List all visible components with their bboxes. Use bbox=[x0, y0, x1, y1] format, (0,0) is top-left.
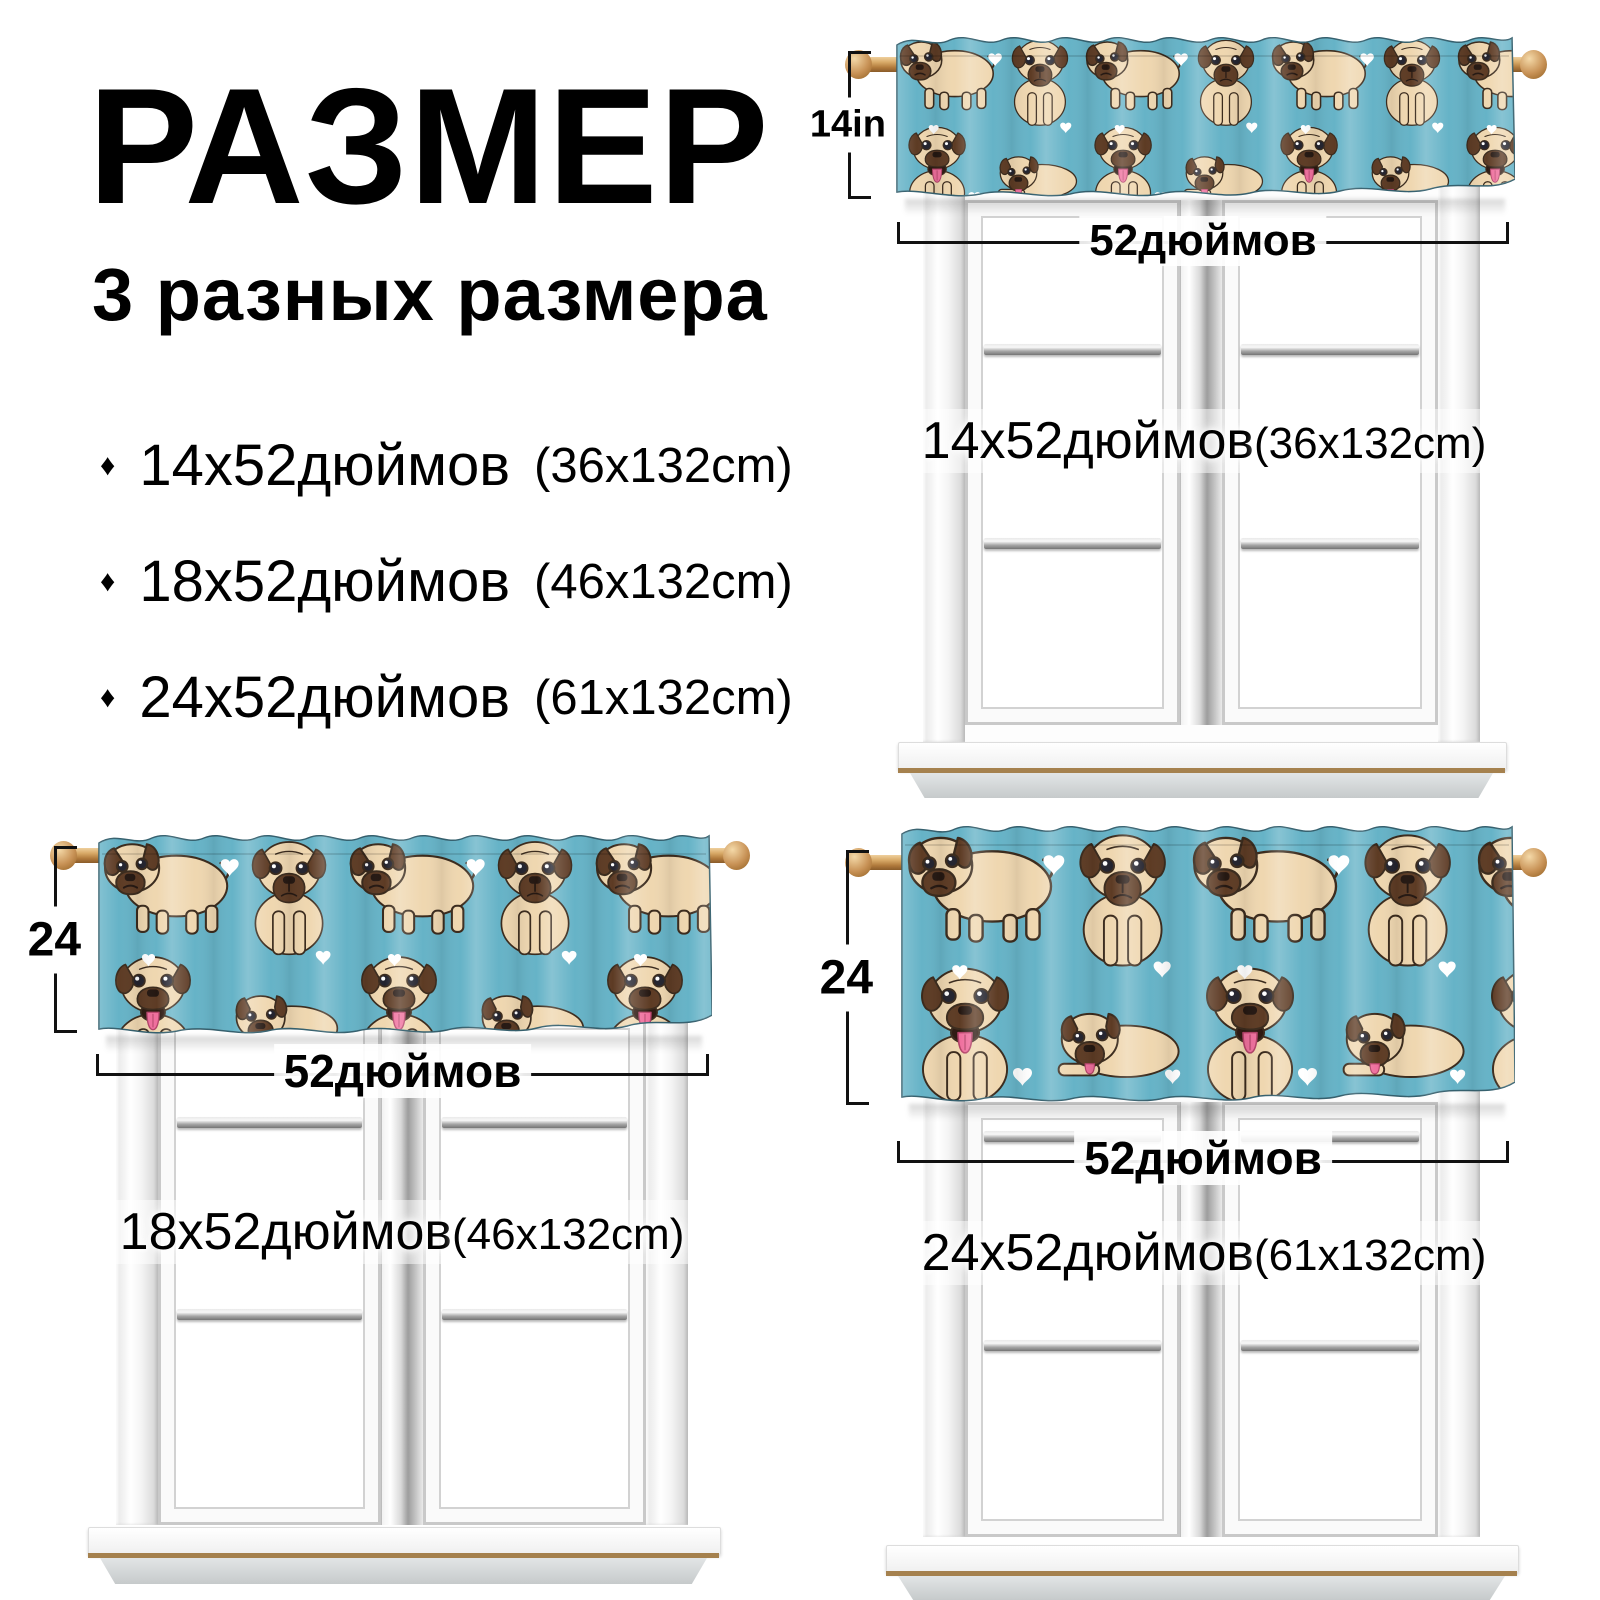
width-dimension-label: 52дюймов bbox=[1074, 1131, 1332, 1185]
height-dimension-label: 24 bbox=[26, 906, 83, 973]
scene-size-metric: (46х132cm) bbox=[452, 1210, 684, 1259]
rod-finial-right bbox=[723, 841, 750, 870]
page-title: РАЗМЕР bbox=[88, 64, 770, 229]
size-option-2: ♦18х52дюймов(46х132cm) bbox=[100, 548, 793, 615]
dimension-cap bbox=[846, 850, 869, 853]
size-option-metric: (61х132cm) bbox=[534, 670, 793, 726]
diamond-bullet-icon: ♦ bbox=[100, 451, 115, 481]
dimension-tick bbox=[897, 1141, 900, 1163]
dimension-tick bbox=[96, 1054, 99, 1076]
page-subtitle: 3 разных размера bbox=[92, 252, 768, 337]
width-dimension-label: 52дюймов bbox=[1079, 216, 1326, 266]
scene-size-main: 14х52дюймов bbox=[922, 412, 1254, 470]
dimension-cap bbox=[848, 51, 871, 54]
dimension-cap bbox=[54, 1030, 77, 1033]
size-option-text: 24х52дюймов bbox=[139, 664, 510, 731]
height-dimension-24: 24 bbox=[54, 846, 57, 1033]
window-muntin-bar bbox=[1241, 538, 1419, 549]
scene-size-label: 18х52дюймов(46х132cm) bbox=[110, 1200, 695, 1264]
size-option-metric: (36х132cm) bbox=[534, 438, 793, 494]
window-muntin-bar bbox=[1241, 344, 1419, 355]
dimension-tick bbox=[706, 1054, 709, 1076]
diamond-bullet-icon: ♦ bbox=[100, 683, 115, 713]
scene-size-label: 14х52дюймов(36х132cm) bbox=[912, 409, 1497, 473]
window-muntin-bar bbox=[442, 1309, 627, 1320]
window-muntin-bar bbox=[177, 1309, 362, 1320]
dimension-tick bbox=[897, 222, 900, 244]
dimension-cap bbox=[848, 196, 871, 199]
rod-finial-right bbox=[1520, 50, 1547, 79]
scene-size-metric: (61х132cm) bbox=[1254, 1231, 1486, 1280]
window-sill-trim bbox=[898, 768, 1505, 773]
dimension-cap bbox=[54, 846, 77, 849]
window-muntin-bar bbox=[1241, 1340, 1419, 1351]
height-dimension-14in: 14in bbox=[848, 51, 851, 199]
pug-valance-18in bbox=[96, 827, 712, 1039]
scene-size-main: 24х52дюймов bbox=[922, 1224, 1254, 1282]
window-apron bbox=[910, 773, 1493, 798]
window-sill bbox=[88, 1527, 721, 1555]
window-muntin-bar bbox=[984, 538, 1161, 549]
diamond-bullet-icon: ♦ bbox=[100, 567, 115, 597]
height-dimension-label: 14in bbox=[808, 98, 888, 153]
rod-finial-right bbox=[1520, 848, 1547, 877]
width-dimension: 52дюймов bbox=[96, 1054, 709, 1076]
scene-size-metric: (36х132cm) bbox=[1254, 419, 1486, 468]
scene-size-main: 18х52дюймов bbox=[120, 1203, 452, 1261]
width-dimension-label: 52дюймов bbox=[274, 1044, 532, 1098]
size-option-metric: (46х132cm) bbox=[534, 554, 793, 610]
window-sill bbox=[898, 742, 1507, 770]
width-dimension: 52дюймов bbox=[897, 1141, 1509, 1163]
pug-valance-14in bbox=[894, 29, 1515, 201]
size-option-text: 14х52дюймов bbox=[139, 432, 510, 499]
window-muntin-bar bbox=[984, 1340, 1161, 1351]
dimension-tick bbox=[1506, 222, 1509, 244]
dimension-tick bbox=[1506, 1141, 1509, 1163]
scene-size-label: 24х52дюймов(61х132cm) bbox=[912, 1221, 1497, 1285]
size-option-3: ♦24х52дюймов(61х132cm) bbox=[100, 664, 793, 731]
window-apron bbox=[100, 1558, 707, 1584]
window-muntin-bar bbox=[984, 344, 1161, 355]
window-apron bbox=[898, 1576, 1505, 1600]
size-option-text: 18х52дюймов bbox=[139, 548, 510, 615]
window-sill bbox=[886, 1545, 1519, 1573]
height-dimension-label: 24 bbox=[818, 944, 875, 1011]
window-muntin-bar bbox=[442, 1117, 627, 1128]
height-dimension-24: 24 bbox=[846, 850, 849, 1105]
size-option-1: ♦14х52дюймов(36х132cm) bbox=[100, 432, 793, 499]
width-dimension: 52дюймов bbox=[897, 222, 1509, 244]
valance-shadow bbox=[905, 199, 1505, 215]
dimension-cap bbox=[846, 1102, 869, 1105]
window-muntin-bar bbox=[177, 1117, 362, 1128]
window-sill-trim bbox=[886, 1571, 1517, 1576]
window-sill-trim bbox=[88, 1553, 719, 1558]
pug-valance-24in bbox=[899, 818, 1515, 1108]
